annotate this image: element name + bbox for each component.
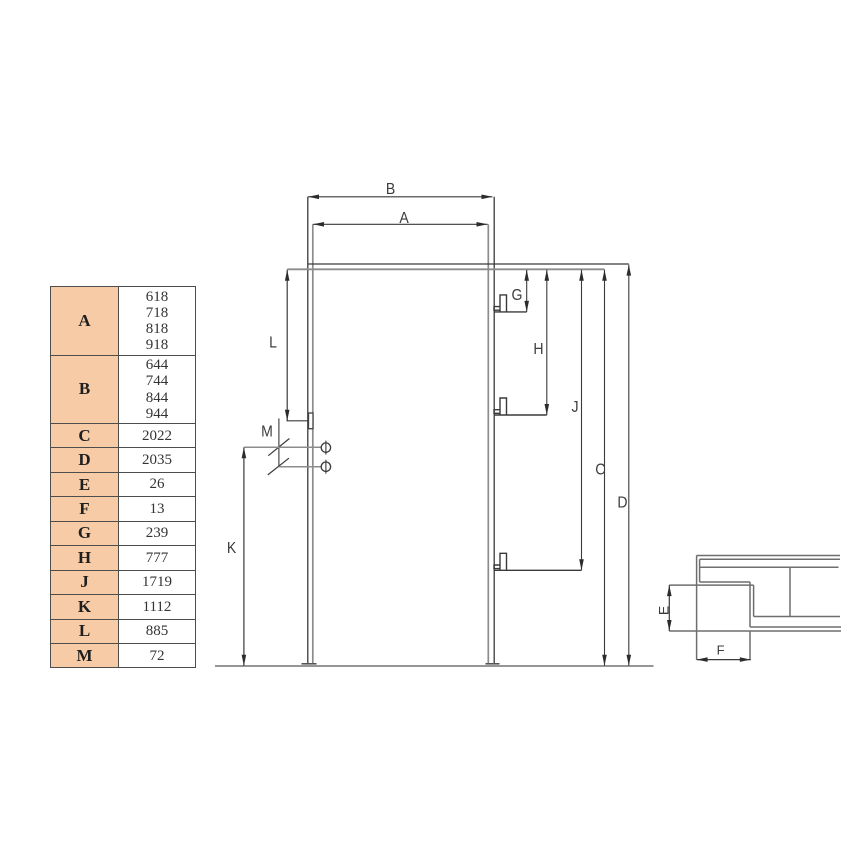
svg-text:A: A [399, 209, 409, 227]
svg-text:G: G [512, 286, 523, 304]
svg-text:J: J [571, 398, 578, 416]
svg-text:K: K [227, 539, 236, 557]
svg-text:L: L [269, 334, 277, 352]
svg-text:H: H [533, 340, 543, 358]
svg-text:C: C [595, 460, 605, 478]
svg-text:F: F [717, 642, 725, 657]
svg-text:B: B [386, 180, 395, 198]
svg-text:M: M [261, 423, 273, 441]
svg-text:E: E [656, 606, 672, 615]
svg-text:D: D [617, 494, 627, 512]
